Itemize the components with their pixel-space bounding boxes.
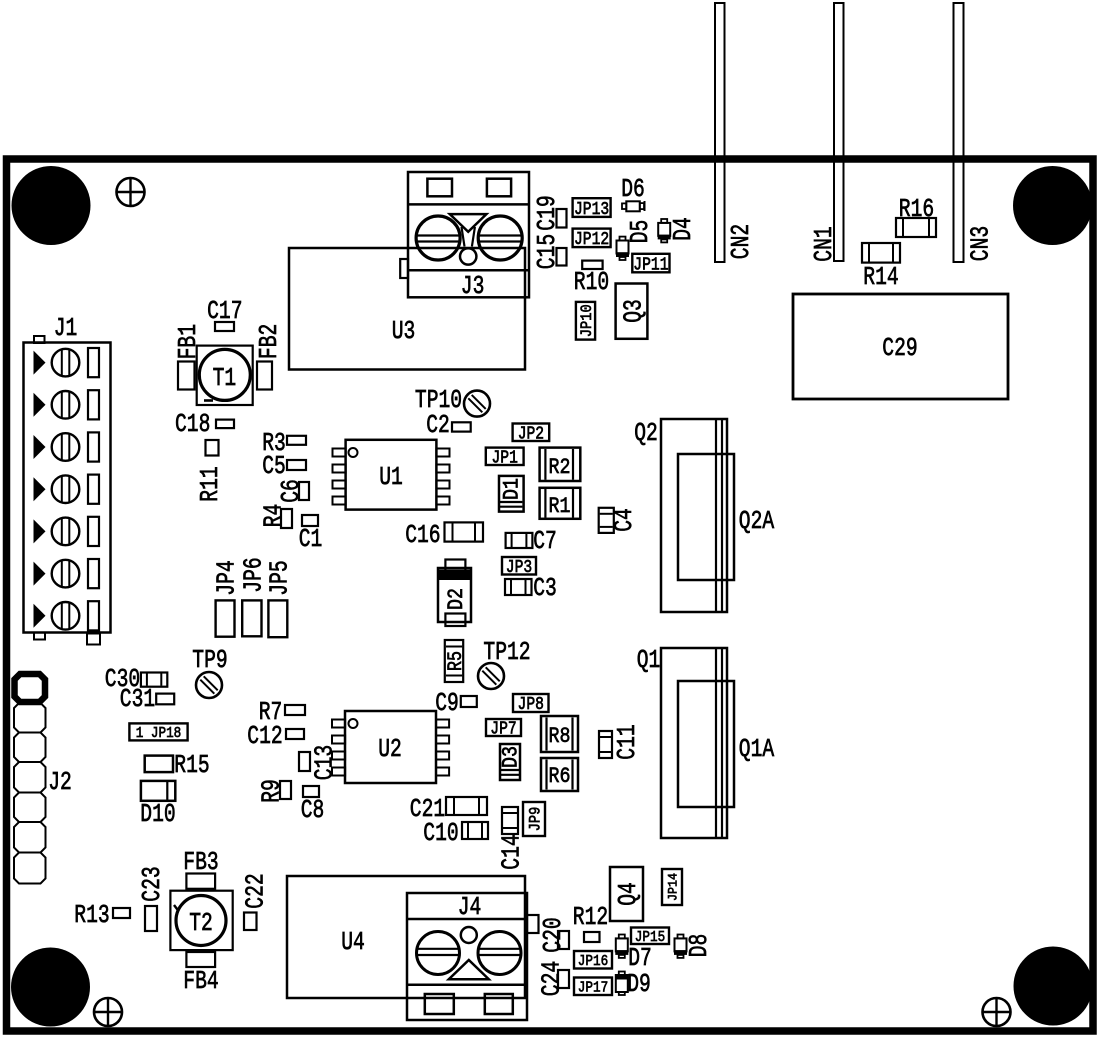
svg-text:JP10: JP10 bbox=[578, 304, 596, 337]
svg-text:R14: R14 bbox=[863, 262, 898, 292]
svg-text:C16: C16 bbox=[405, 520, 440, 550]
svg-text:R11: R11 bbox=[195, 466, 225, 501]
svg-text:CN3: CN3 bbox=[966, 226, 996, 261]
svg-text:JP7: JP7 bbox=[490, 720, 516, 740]
svg-text:CN2: CN2 bbox=[726, 224, 756, 259]
svg-text:D9: D9 bbox=[627, 969, 651, 999]
svg-text:TP9: TP9 bbox=[192, 645, 227, 675]
svg-text:U2: U2 bbox=[378, 734, 402, 764]
svg-text:FB1: FB1 bbox=[173, 324, 203, 359]
svg-text:C10: C10 bbox=[423, 818, 458, 848]
svg-text:C8: C8 bbox=[301, 795, 325, 825]
svg-text:R8: R8 bbox=[549, 724, 571, 749]
svg-text:R10: R10 bbox=[574, 267, 609, 297]
svg-text:JP3: JP3 bbox=[506, 558, 532, 578]
svg-text:JP16: JP16 bbox=[578, 953, 608, 970]
svg-text:JP2: JP2 bbox=[518, 425, 544, 445]
svg-text:CN1: CN1 bbox=[809, 226, 839, 261]
svg-text:D8: D8 bbox=[684, 934, 714, 958]
svg-text:C29: C29 bbox=[882, 333, 917, 363]
svg-text:C23: C23 bbox=[137, 866, 167, 901]
svg-text:Q4: Q4 bbox=[613, 882, 643, 906]
svg-text:R12: R12 bbox=[573, 902, 608, 932]
svg-text:JP1: JP1 bbox=[492, 449, 518, 469]
svg-text:R1: R1 bbox=[549, 494, 571, 519]
svg-text:Q1A: Q1A bbox=[739, 734, 775, 764]
svg-text:T1: T1 bbox=[213, 363, 237, 393]
svg-text:C5: C5 bbox=[262, 451, 286, 481]
svg-text:C9: C9 bbox=[435, 688, 459, 718]
svg-text:JP11: JP11 bbox=[633, 255, 668, 275]
svg-text:C20: C20 bbox=[538, 917, 568, 952]
svg-text:C22: C22 bbox=[241, 873, 271, 908]
svg-text:JP14: JP14 bbox=[666, 873, 681, 901]
svg-text:C2: C2 bbox=[426, 410, 450, 440]
svg-text:JP8: JP8 bbox=[518, 695, 544, 715]
svg-text:U4: U4 bbox=[341, 927, 365, 957]
svg-text:FB4: FB4 bbox=[183, 966, 218, 996]
svg-text:R2: R2 bbox=[549, 455, 571, 480]
svg-text:J1: J1 bbox=[54, 313, 78, 343]
svg-text:R5: R5 bbox=[445, 651, 468, 671]
svg-text:T2: T2 bbox=[189, 908, 213, 938]
svg-text:D6: D6 bbox=[621, 174, 645, 204]
svg-text:D1: D1 bbox=[500, 478, 525, 500]
svg-text:C1: C1 bbox=[299, 524, 323, 554]
svg-text:J2: J2 bbox=[48, 767, 72, 797]
svg-text:JP12: JP12 bbox=[574, 230, 609, 250]
svg-text:JP17: JP17 bbox=[578, 979, 608, 996]
svg-text:R4: R4 bbox=[259, 504, 289, 528]
svg-text:JP5: JP5 bbox=[265, 560, 295, 595]
svg-text:Q1: Q1 bbox=[637, 645, 661, 675]
svg-text:D3: D3 bbox=[499, 746, 524, 768]
svg-text:C24: C24 bbox=[537, 961, 567, 996]
svg-text:R13: R13 bbox=[74, 900, 109, 930]
svg-text:U3: U3 bbox=[392, 316, 416, 346]
svg-text:C14: C14 bbox=[497, 834, 527, 869]
svg-text:C18: C18 bbox=[175, 409, 210, 439]
svg-text:D2: D2 bbox=[444, 588, 469, 610]
svg-text:JP9: JP9 bbox=[527, 807, 545, 832]
svg-text:JP13: JP13 bbox=[574, 200, 609, 220]
svg-text:1 JP18: 1 JP18 bbox=[136, 725, 182, 742]
svg-text:J3: J3 bbox=[461, 271, 485, 301]
svg-text:D4: D4 bbox=[668, 217, 698, 241]
svg-text:U1: U1 bbox=[379, 462, 403, 492]
svg-text:Q3: Q3 bbox=[619, 299, 649, 323]
svg-text:J4: J4 bbox=[458, 892, 482, 922]
svg-text:C12: C12 bbox=[247, 721, 282, 751]
svg-text:C3: C3 bbox=[533, 573, 557, 603]
svg-text:C11: C11 bbox=[612, 724, 642, 759]
svg-text:C7: C7 bbox=[533, 526, 557, 556]
svg-text:JP4: JP4 bbox=[212, 560, 242, 595]
svg-text:R6: R6 bbox=[549, 764, 571, 789]
svg-text:R15: R15 bbox=[174, 750, 209, 780]
svg-text:C4: C4 bbox=[609, 508, 639, 532]
svg-text:Q2: Q2 bbox=[634, 418, 658, 448]
svg-text:C31: C31 bbox=[120, 684, 155, 714]
svg-text:D10: D10 bbox=[140, 799, 175, 829]
svg-text:FB2: FB2 bbox=[254, 324, 284, 359]
svg-text:Q2A: Q2A bbox=[739, 506, 775, 536]
